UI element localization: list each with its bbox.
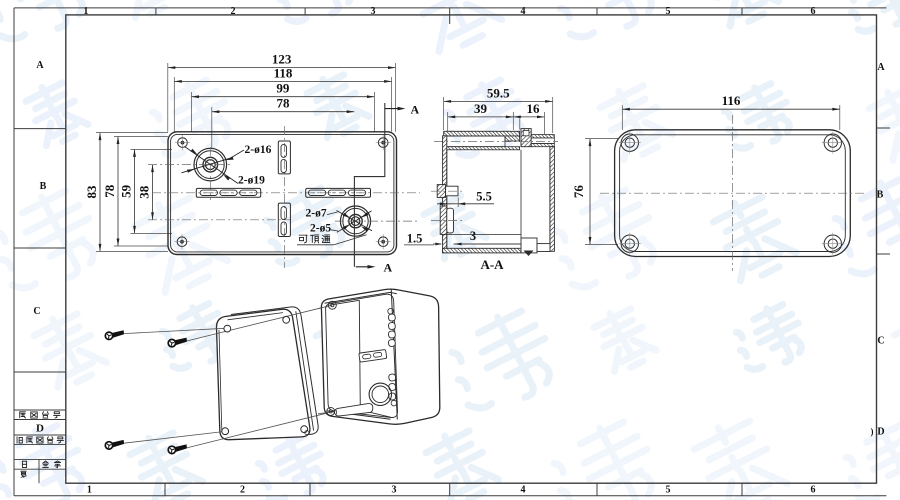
svg-text:59: 59 bbox=[119, 184, 134, 198]
svg-text:16: 16 bbox=[527, 101, 541, 116]
svg-text:78: 78 bbox=[277, 96, 291, 111]
svg-text:78: 78 bbox=[102, 184, 117, 198]
svg-text:B: B bbox=[40, 181, 47, 192]
svg-text:38: 38 bbox=[137, 185, 152, 199]
svg-text:A: A bbox=[384, 261, 393, 275]
svg-text:D: D bbox=[36, 423, 44, 435]
svg-text:A: A bbox=[411, 103, 420, 117]
svg-text:1: 1 bbox=[87, 485, 92, 496]
svg-text:C: C bbox=[877, 336, 884, 347]
svg-text:A: A bbox=[877, 62, 885, 73]
svg-text:A: A bbox=[36, 60, 44, 71]
svg-text:2-ø7: 2-ø7 bbox=[306, 207, 327, 219]
svg-text:76: 76 bbox=[571, 185, 586, 199]
svg-text:2-ø16: 2-ø16 bbox=[245, 144, 272, 156]
svg-text:D: D bbox=[877, 427, 884, 438]
svg-text:2: 2 bbox=[240, 485, 245, 496]
svg-text:5.5: 5.5 bbox=[476, 190, 492, 204]
svg-text:5: 5 bbox=[666, 485, 671, 496]
svg-text:2: 2 bbox=[231, 6, 236, 17]
svg-text:83: 83 bbox=[84, 185, 99, 199]
svg-text:C: C bbox=[33, 306, 40, 317]
svg-text:4: 4 bbox=[521, 6, 526, 17]
svg-text:123: 123 bbox=[272, 52, 292, 67]
svg-text:1: 1 bbox=[83, 6, 88, 17]
svg-text:59.5: 59.5 bbox=[487, 85, 510, 100]
svg-text:B: B bbox=[877, 190, 884, 201]
svg-text:6: 6 bbox=[811, 485, 816, 496]
svg-text:39: 39 bbox=[474, 101, 488, 116]
svg-text:2-ø5: 2-ø5 bbox=[310, 223, 331, 235]
svg-text:A-A: A-A bbox=[480, 257, 504, 272]
svg-text:5: 5 bbox=[666, 6, 671, 17]
svg-text:2-ø19: 2-ø19 bbox=[238, 174, 265, 186]
svg-text:3: 3 bbox=[392, 485, 397, 496]
svg-text:116: 116 bbox=[722, 93, 741, 108]
svg-text:4: 4 bbox=[521, 485, 526, 496]
svg-text:99: 99 bbox=[276, 81, 290, 96]
svg-text:1.5: 1.5 bbox=[407, 231, 423, 245]
svg-text:6: 6 bbox=[811, 6, 816, 17]
svg-text:): ) bbox=[871, 427, 874, 437]
svg-text:3: 3 bbox=[371, 6, 376, 17]
svg-text:118: 118 bbox=[274, 65, 293, 80]
svg-text:3: 3 bbox=[470, 229, 476, 243]
